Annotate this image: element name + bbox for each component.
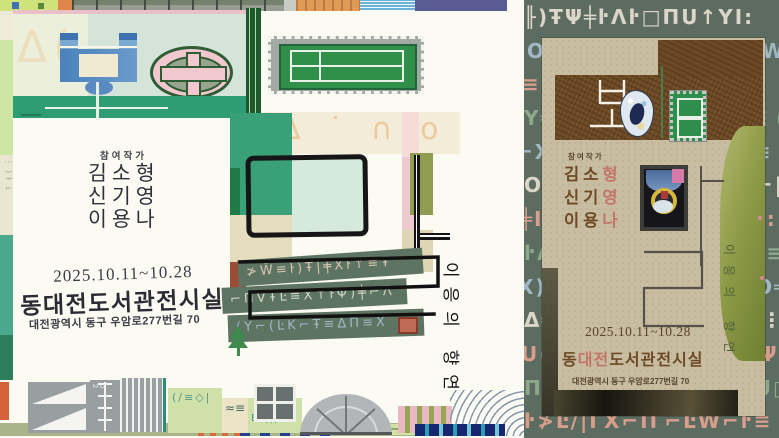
artist-name: 김소형 [88,162,160,185]
artist-label: 참여작가 [568,151,604,162]
green-vstrip [246,8,261,115]
checkered-band [415,424,505,436]
protractor-graphic [300,394,392,435]
bieup-stem-left-cap [60,33,78,40]
cross-ellipse-graphic [150,46,233,99]
artist-name-main: 신기 [564,189,602,207]
tree-mid [228,334,248,348]
teal-block-dark-edge [230,168,240,215]
stamp-graphic [268,36,424,94]
window-graphic [670,91,706,141]
artist-name-main: 이용 [564,212,602,230]
venue-name: 동대전도서관전시실 [562,346,704,370]
olive-dot [760,276,764,280]
teal-band [13,96,250,118]
edge-cream [0,11,13,40]
top-strip-indigo [415,0,507,11]
a-glyph-arm [420,233,450,240]
rieul-line-icon [640,248,710,333]
artist-label: 참여작가 [100,148,147,162]
window-pane [677,118,703,138]
artist-name: 김소형 [564,164,622,187]
edge-darkteal [0,335,13,380]
poster-collage: ⋮)ŀ⌐ Δ( Δ ˙ ∩ o [0,0,779,438]
artwork-pink-corner [672,169,684,183]
venue-part1: 동 [562,352,578,369]
bieup-stem-right-cap [119,33,137,40]
artist-name: 이용나 [88,208,160,231]
tree-icon [228,326,248,356]
olive-dot [758,216,762,220]
artist-name: 신기영 [88,185,160,208]
venue-part2: 도서관전시실 [609,352,703,369]
framed-artwork-graphic [640,165,688,231]
poster-title-vertical: 이응의 향연 [721,244,738,363]
teal-band-white-line [45,107,168,109]
black-frame-graphic [245,154,368,238]
artist-name-accent: 나 [602,212,621,230]
tree-trunk [237,348,240,356]
artist-name-main: 김소 [564,166,602,184]
right-poster: 참여작가 김소형 신기영 이용나 이응의 향연 2025.10.11~10.28… [542,38,765,416]
artist-name-accent: 영 [602,189,621,207]
window-pane [677,98,703,118]
edge-glyphs: ⋮)ŀ⌐ [1,158,13,232]
court-vline [319,50,321,82]
cross-horizontal [160,66,227,82]
a-line-arm [702,180,724,182]
artist-name: 이용나 [564,210,622,233]
ruler-block: 0 1 2 [90,380,120,433]
poster-title-vertical: 이응의 향연 [440,262,465,399]
venue-accent: 대전 [578,352,609,369]
ruler-numbers: 0 1 2 [91,384,105,433]
artwork-red-square [661,191,668,199]
bieup-center-window [79,54,118,77]
artwork-white-blob [653,200,673,213]
protractor-vline [345,396,347,435]
rieul-outline-icon [222,248,460,348]
teal-band-tick [21,114,41,116]
bieup-white-line [60,46,137,48]
green-glyph-block: (/≡◇| [168,388,222,433]
venue-address: 대전광역시 동구 우암로277번길 70 [572,376,689,387]
edge-lightgreen [0,40,13,155]
court-midline [290,65,404,67]
window-graphic [254,384,296,422]
top-strip-blue [360,0,415,11]
artist-name: 신기영 [564,187,622,210]
top-strip-orange2 [296,0,360,11]
white-triangle [32,408,86,430]
brown-block-column [658,40,763,77]
pattern-row: ╟)ŦΨ╪ŀΛŀ□ΠU↑YI: [524,0,779,34]
top-strip-lime-mark2 [38,3,44,9]
gray-triangle-block [28,382,90,433]
artist-name-accent: 형 [602,166,621,184]
protractor-base [300,432,392,435]
barcode-block [120,378,165,432]
window-mullion-h [257,401,293,404]
top-strip-lightgray [284,0,296,11]
top-strip-lime-mark [12,2,19,9]
peach-glyphs: Δ ˙ ∩ o [280,112,447,147]
dark-wash-bottom [554,390,738,416]
white-drop-line [96,82,99,120]
info-block: 2025.10.11~10.28 동대전도서관전시실 대전광역시 동구 우암로2… [11,252,254,338]
cream-glyph-block: ≈≡ [222,398,248,433]
green-line [661,66,663,138]
white-triangle [32,384,86,404]
bieup-ellipse [85,80,113,95]
edge-redorange [0,382,9,420]
stamp-field [279,44,417,90]
pebble-hole [628,102,647,127]
teal-edge-line [163,378,166,432]
exhibition-dates: 2025.10.11~10.28 [585,324,691,340]
